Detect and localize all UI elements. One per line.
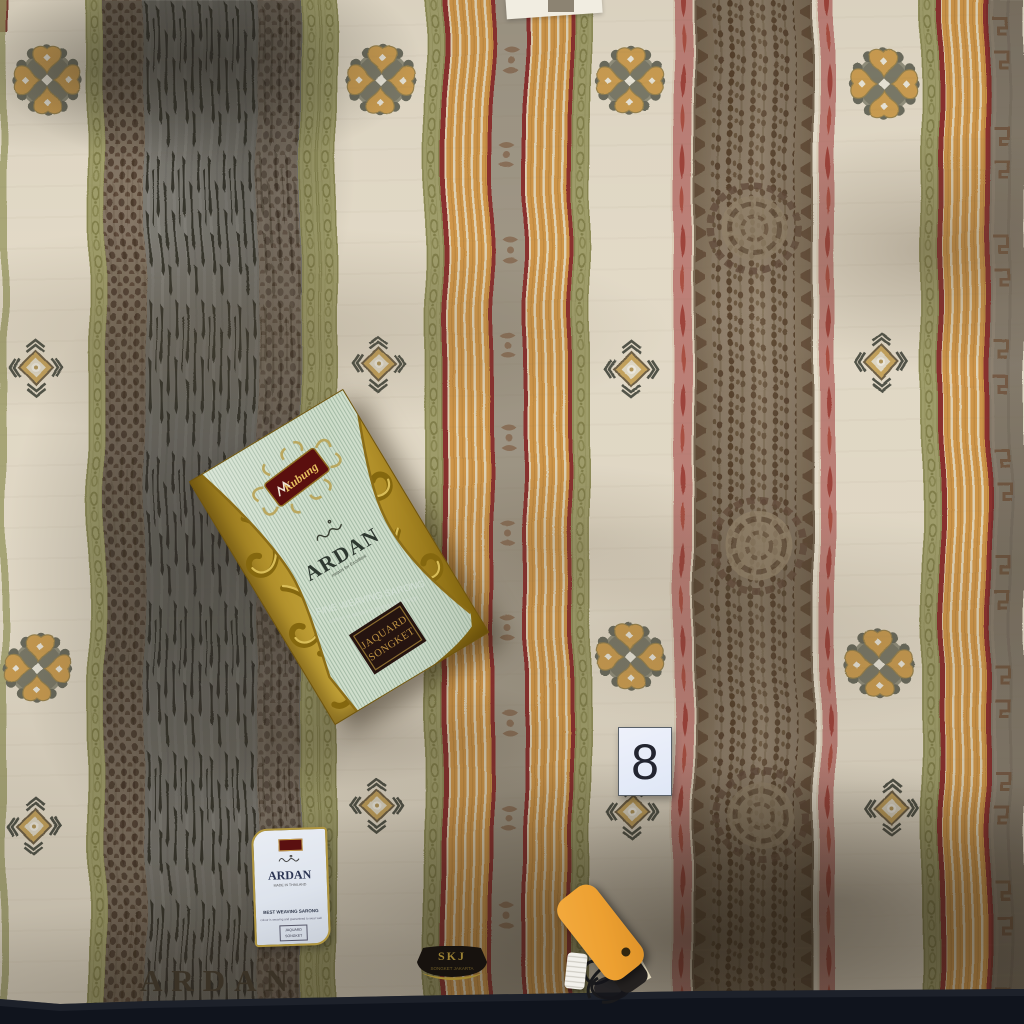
svg-text:SKJ: SKJ: [438, 949, 466, 963]
svg-text:SONGKET JAKARTA: SONGKET JAKARTA: [430, 966, 473, 971]
